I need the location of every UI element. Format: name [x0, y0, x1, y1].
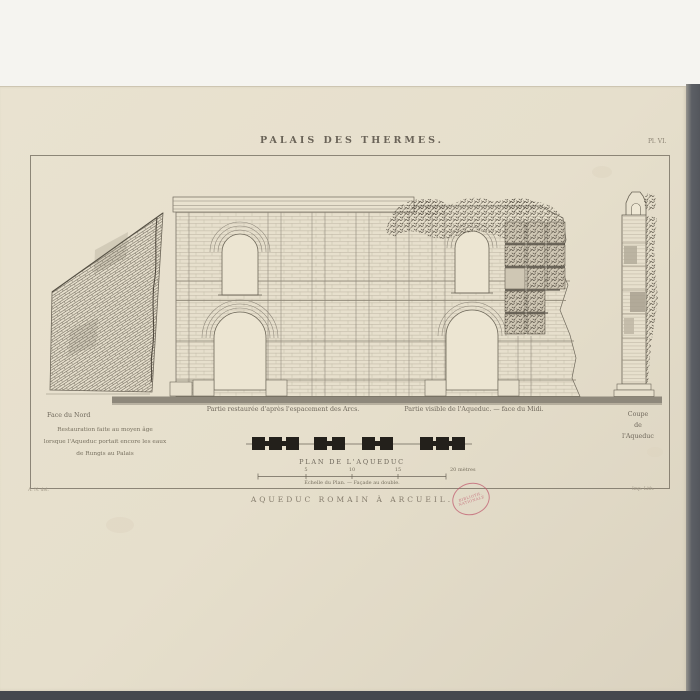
scanned-plate-page: PALAIS DES THERMES. Pl. VI. Face du Nord… — [0, 0, 700, 700]
scale-tick-20m: 20 mètres — [450, 468, 476, 473]
engraver-credit-right: Imp. Lith. — [632, 488, 654, 493]
visible-part-label: Partie visible de l'Aqueduc. — face du M… — [404, 407, 543, 413]
aqueduct-elevation-drawing — [170, 197, 580, 397]
plate-bottom-caption: AQUEDUC ROMAIN À ARCUEIL. — [251, 496, 453, 504]
scale-caption: Échelle du Plan. — Façade au double. — [304, 481, 400, 486]
section-label-line2: de — [634, 423, 642, 429]
plate-title: PALAIS DES THERMES. — [260, 136, 444, 146]
scale-tick-5: 5 — [304, 468, 307, 473]
scale-tick-10: 10 — [349, 468, 355, 473]
north-face-note-line2: lorsque l'Aqueduc portait encore les eau… — [44, 440, 167, 446]
engraver-credit-left: A. N. del. — [28, 489, 49, 494]
plan-title: PLAN DE L'AQUEDUC — [299, 459, 405, 466]
restored-part-label: Partie restaurée d'après l'espacement de… — [207, 407, 360, 413]
engraving-graphics — [0, 0, 700, 700]
section-label-line1: Coupe — [628, 412, 648, 418]
scale-bar — [258, 474, 446, 480]
aqueduct-plan-drawing — [246, 437, 472, 450]
north-face-note-line1: Restauration faite au moyen âge — [57, 428, 153, 434]
plate-number: Pl. VI. — [648, 139, 666, 145]
ground-line — [112, 397, 662, 405]
scale-tick-15: 15 — [395, 468, 401, 473]
north-face-label: Face du Nord — [47, 413, 90, 419]
section-label-line3: l'Aqueduc — [622, 434, 654, 440]
aqueduct-section-drawing — [614, 192, 658, 397]
north-face-sketch — [46, 213, 163, 394]
north-face-note-line3: de Rungis au Palais — [76, 452, 133, 458]
